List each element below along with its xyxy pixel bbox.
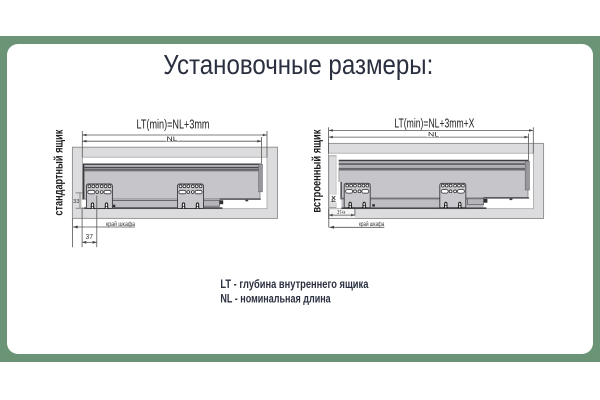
svg-text:стандартный ящик: стандартный ящик bbox=[53, 129, 65, 215]
svg-text:встроенный ящик: встроенный ящик bbox=[311, 129, 323, 212]
svg-text:NL - номинальная длина: NL - номинальная длина bbox=[220, 294, 331, 306]
svg-text:край шкафа: край шкафа bbox=[106, 221, 136, 228]
svg-text:край шкафа: край шкафа bbox=[359, 221, 385, 228]
svg-text:LT - глубина внутреннего ящик: LT - глубина внутреннего ящика bbox=[220, 279, 368, 291]
svg-text:37: 37 bbox=[86, 232, 94, 241]
svg-text:37+x: 37+x bbox=[337, 210, 345, 216]
svg-text:NL: NL bbox=[167, 136, 179, 143]
svg-text:LT(min)=NL+3mm+X: LT(min)=NL+3mm+X bbox=[394, 116, 474, 130]
svg-text:33: 33 bbox=[73, 199, 79, 205]
svg-text:Установочные размеры:: Установочные размеры: bbox=[163, 49, 433, 80]
svg-text:LT(min)=NL+3mm: LT(min)=NL+3mm bbox=[137, 118, 210, 132]
svg-text:NL: NL bbox=[428, 132, 440, 139]
